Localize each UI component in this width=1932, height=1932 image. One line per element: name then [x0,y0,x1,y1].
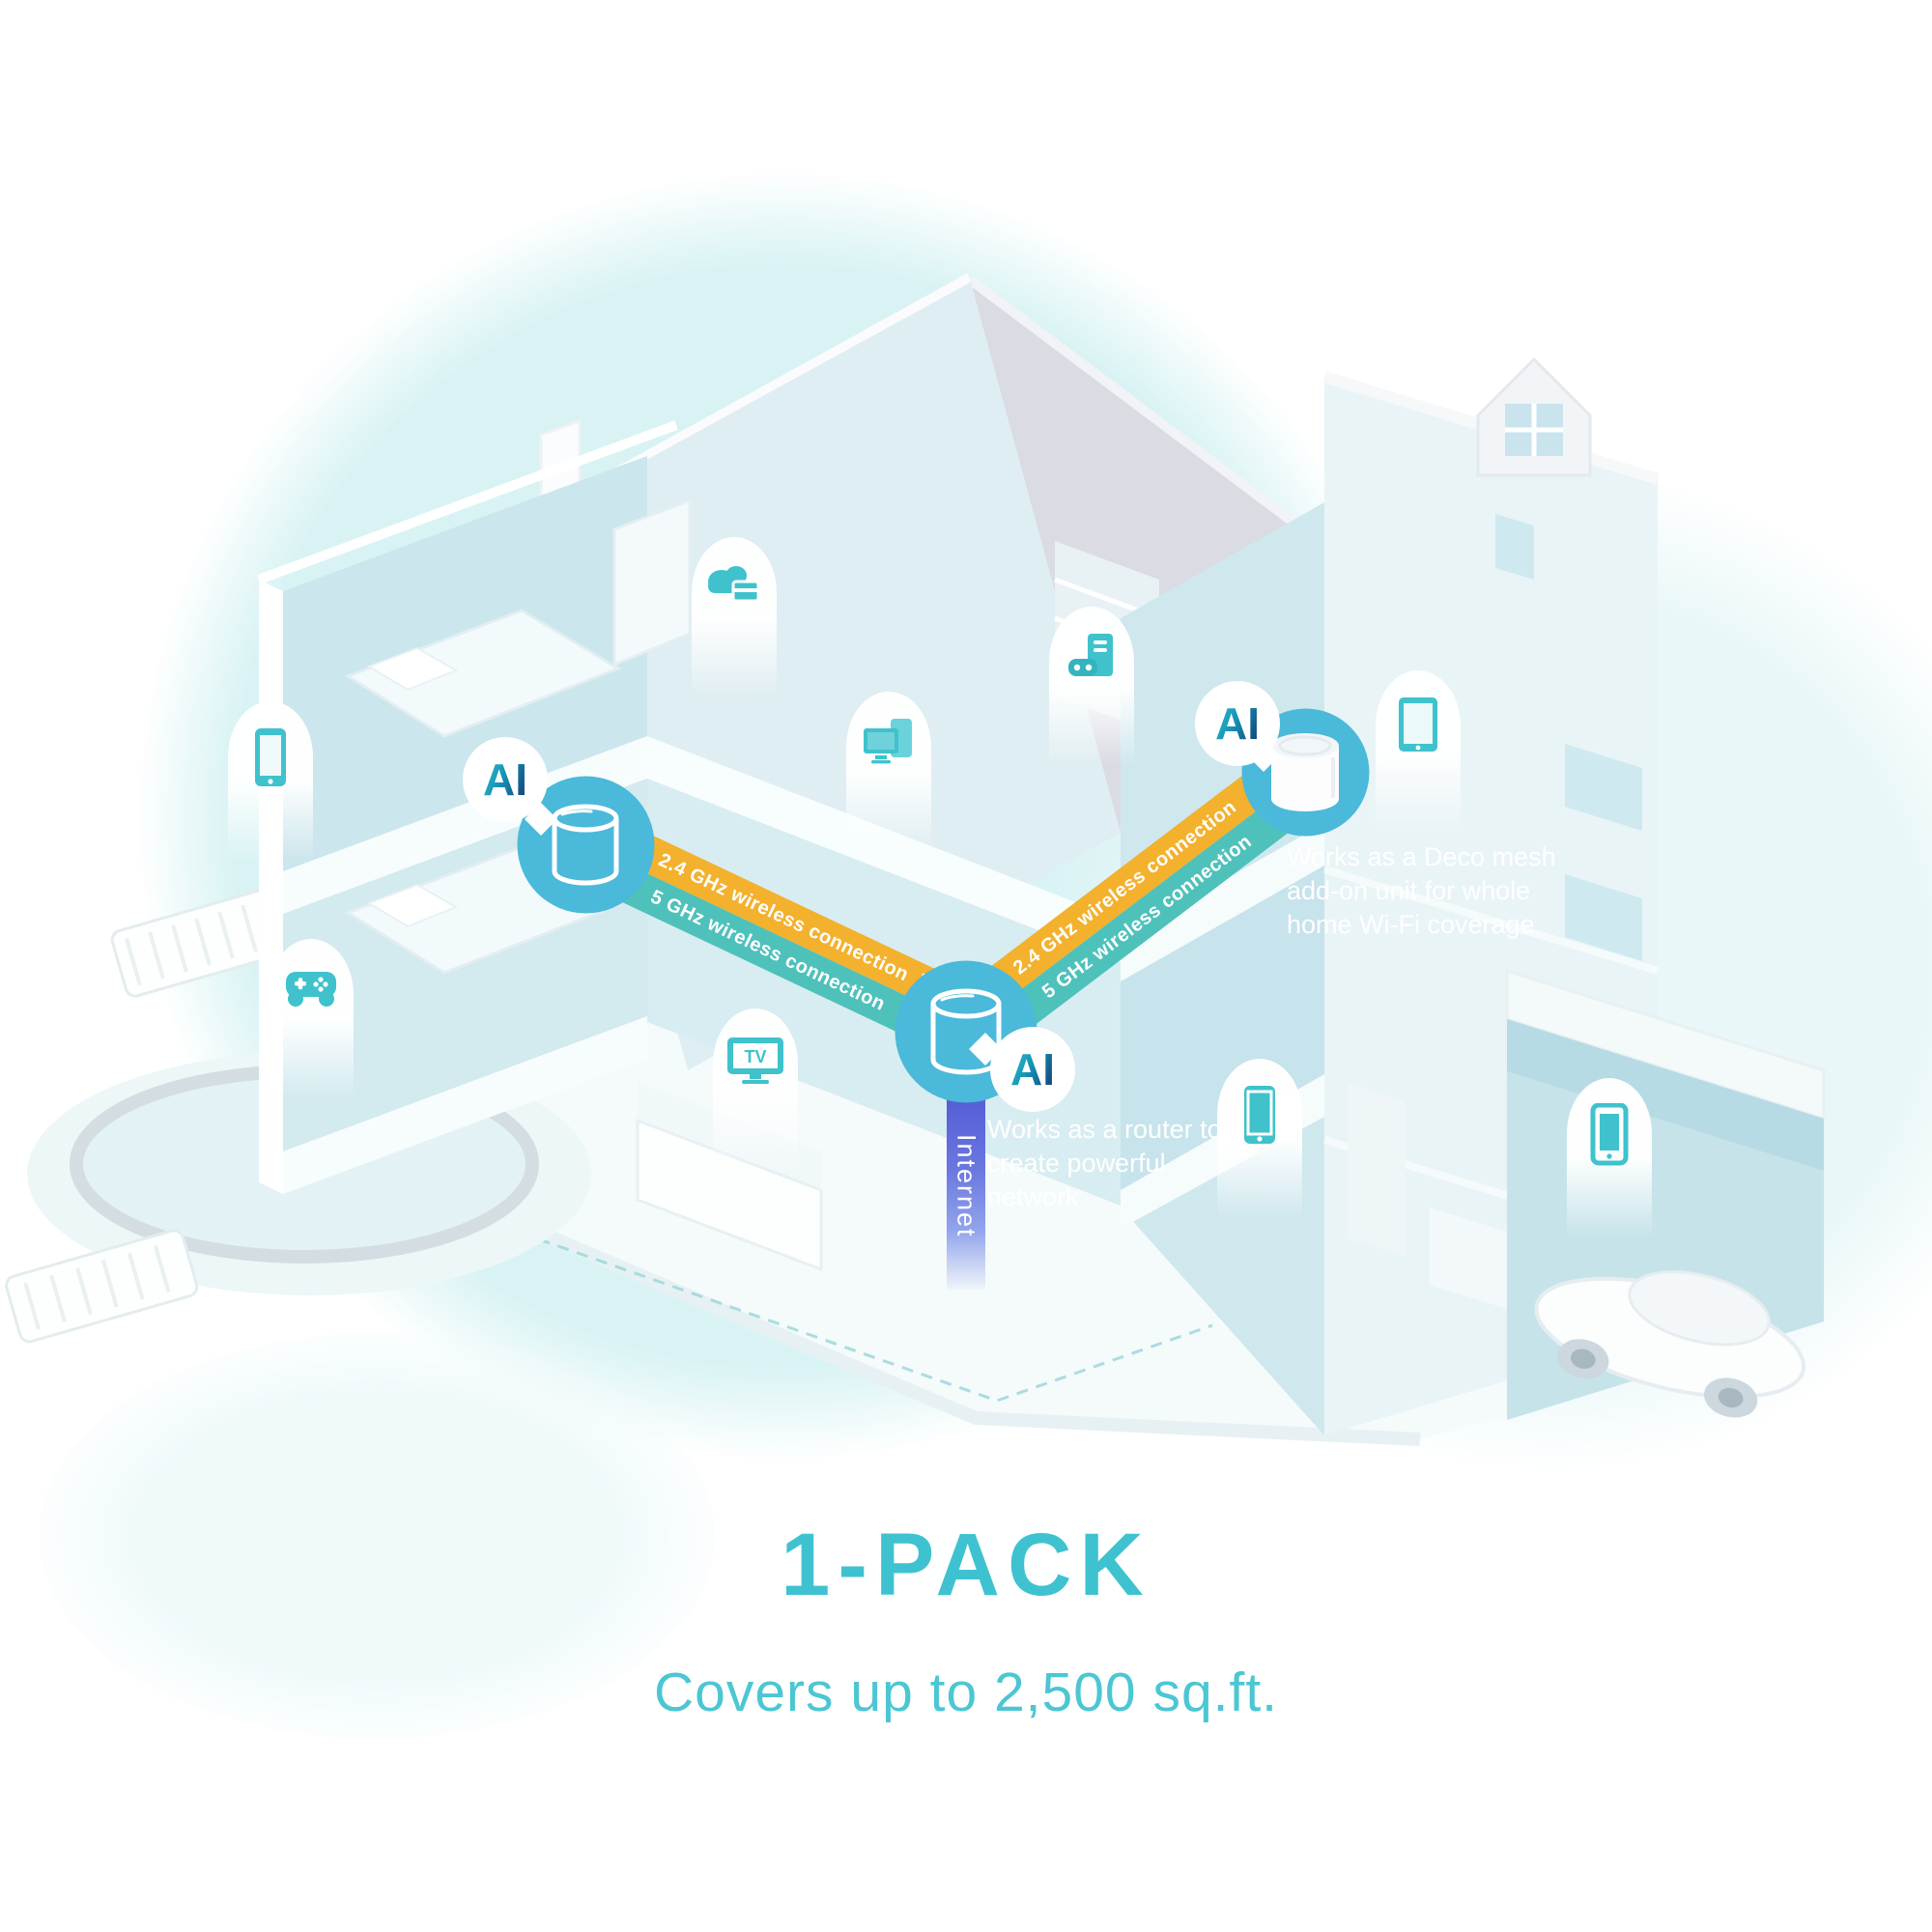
game-controller-icon [284,964,338,1009]
internet-line: Internet [947,1082,985,1290]
ai-badge-text: AI [1010,1043,1055,1095]
headline-block: 1-PACK Covers up to 2,500 sq.ft. [0,1515,1932,1724]
smartphone-icon [1238,1084,1281,1148]
device-marker-study [1049,607,1134,773]
device-marker-living-room: TV [713,1009,798,1175]
device-marker-patio [269,939,354,1105]
internet-label: Internet [952,1134,981,1238]
smartphone-icon [249,726,292,790]
device-marker-hallway [846,692,931,858]
device-marker-laundry [692,537,777,703]
computer-screens-icon [862,717,916,765]
router-caption: Works as a router to create powerful net… [987,1113,1238,1214]
tv-icon-label: TV [744,1047,766,1066]
device-marker-bedroom [228,701,313,867]
smartphone-icon [1588,1103,1631,1167]
vr-gaming-pc-icon [1066,632,1117,684]
deco-mesh-coverage-figure: TV 2.4 GHz wireless connection [0,0,1932,1932]
device-marker-garage [1567,1078,1652,1244]
ai-badge-mesh: AI [1195,681,1280,766]
ai-badge-text: AI [483,753,527,806]
cloud-storage-icon [704,562,764,609]
pack-title: 1-PACK [0,1515,1932,1616]
fridge-illustration [1348,1082,1406,1256]
ai-badge-left: AI [463,737,548,822]
tv-icon: TV [725,1034,785,1088]
mesh-addon-caption: Works as a Deco mesh add-on unit for who… [1287,840,1567,942]
device-marker-attic [1376,670,1461,837]
tablet-icon [1395,696,1441,753]
coverage-subtitle: Covers up to 2,500 sq.ft. [0,1661,1932,1724]
dormer [1478,359,1590,475]
ai-badge-text: AI [1215,697,1260,750]
ai-badge-router: AI [990,1027,1075,1112]
